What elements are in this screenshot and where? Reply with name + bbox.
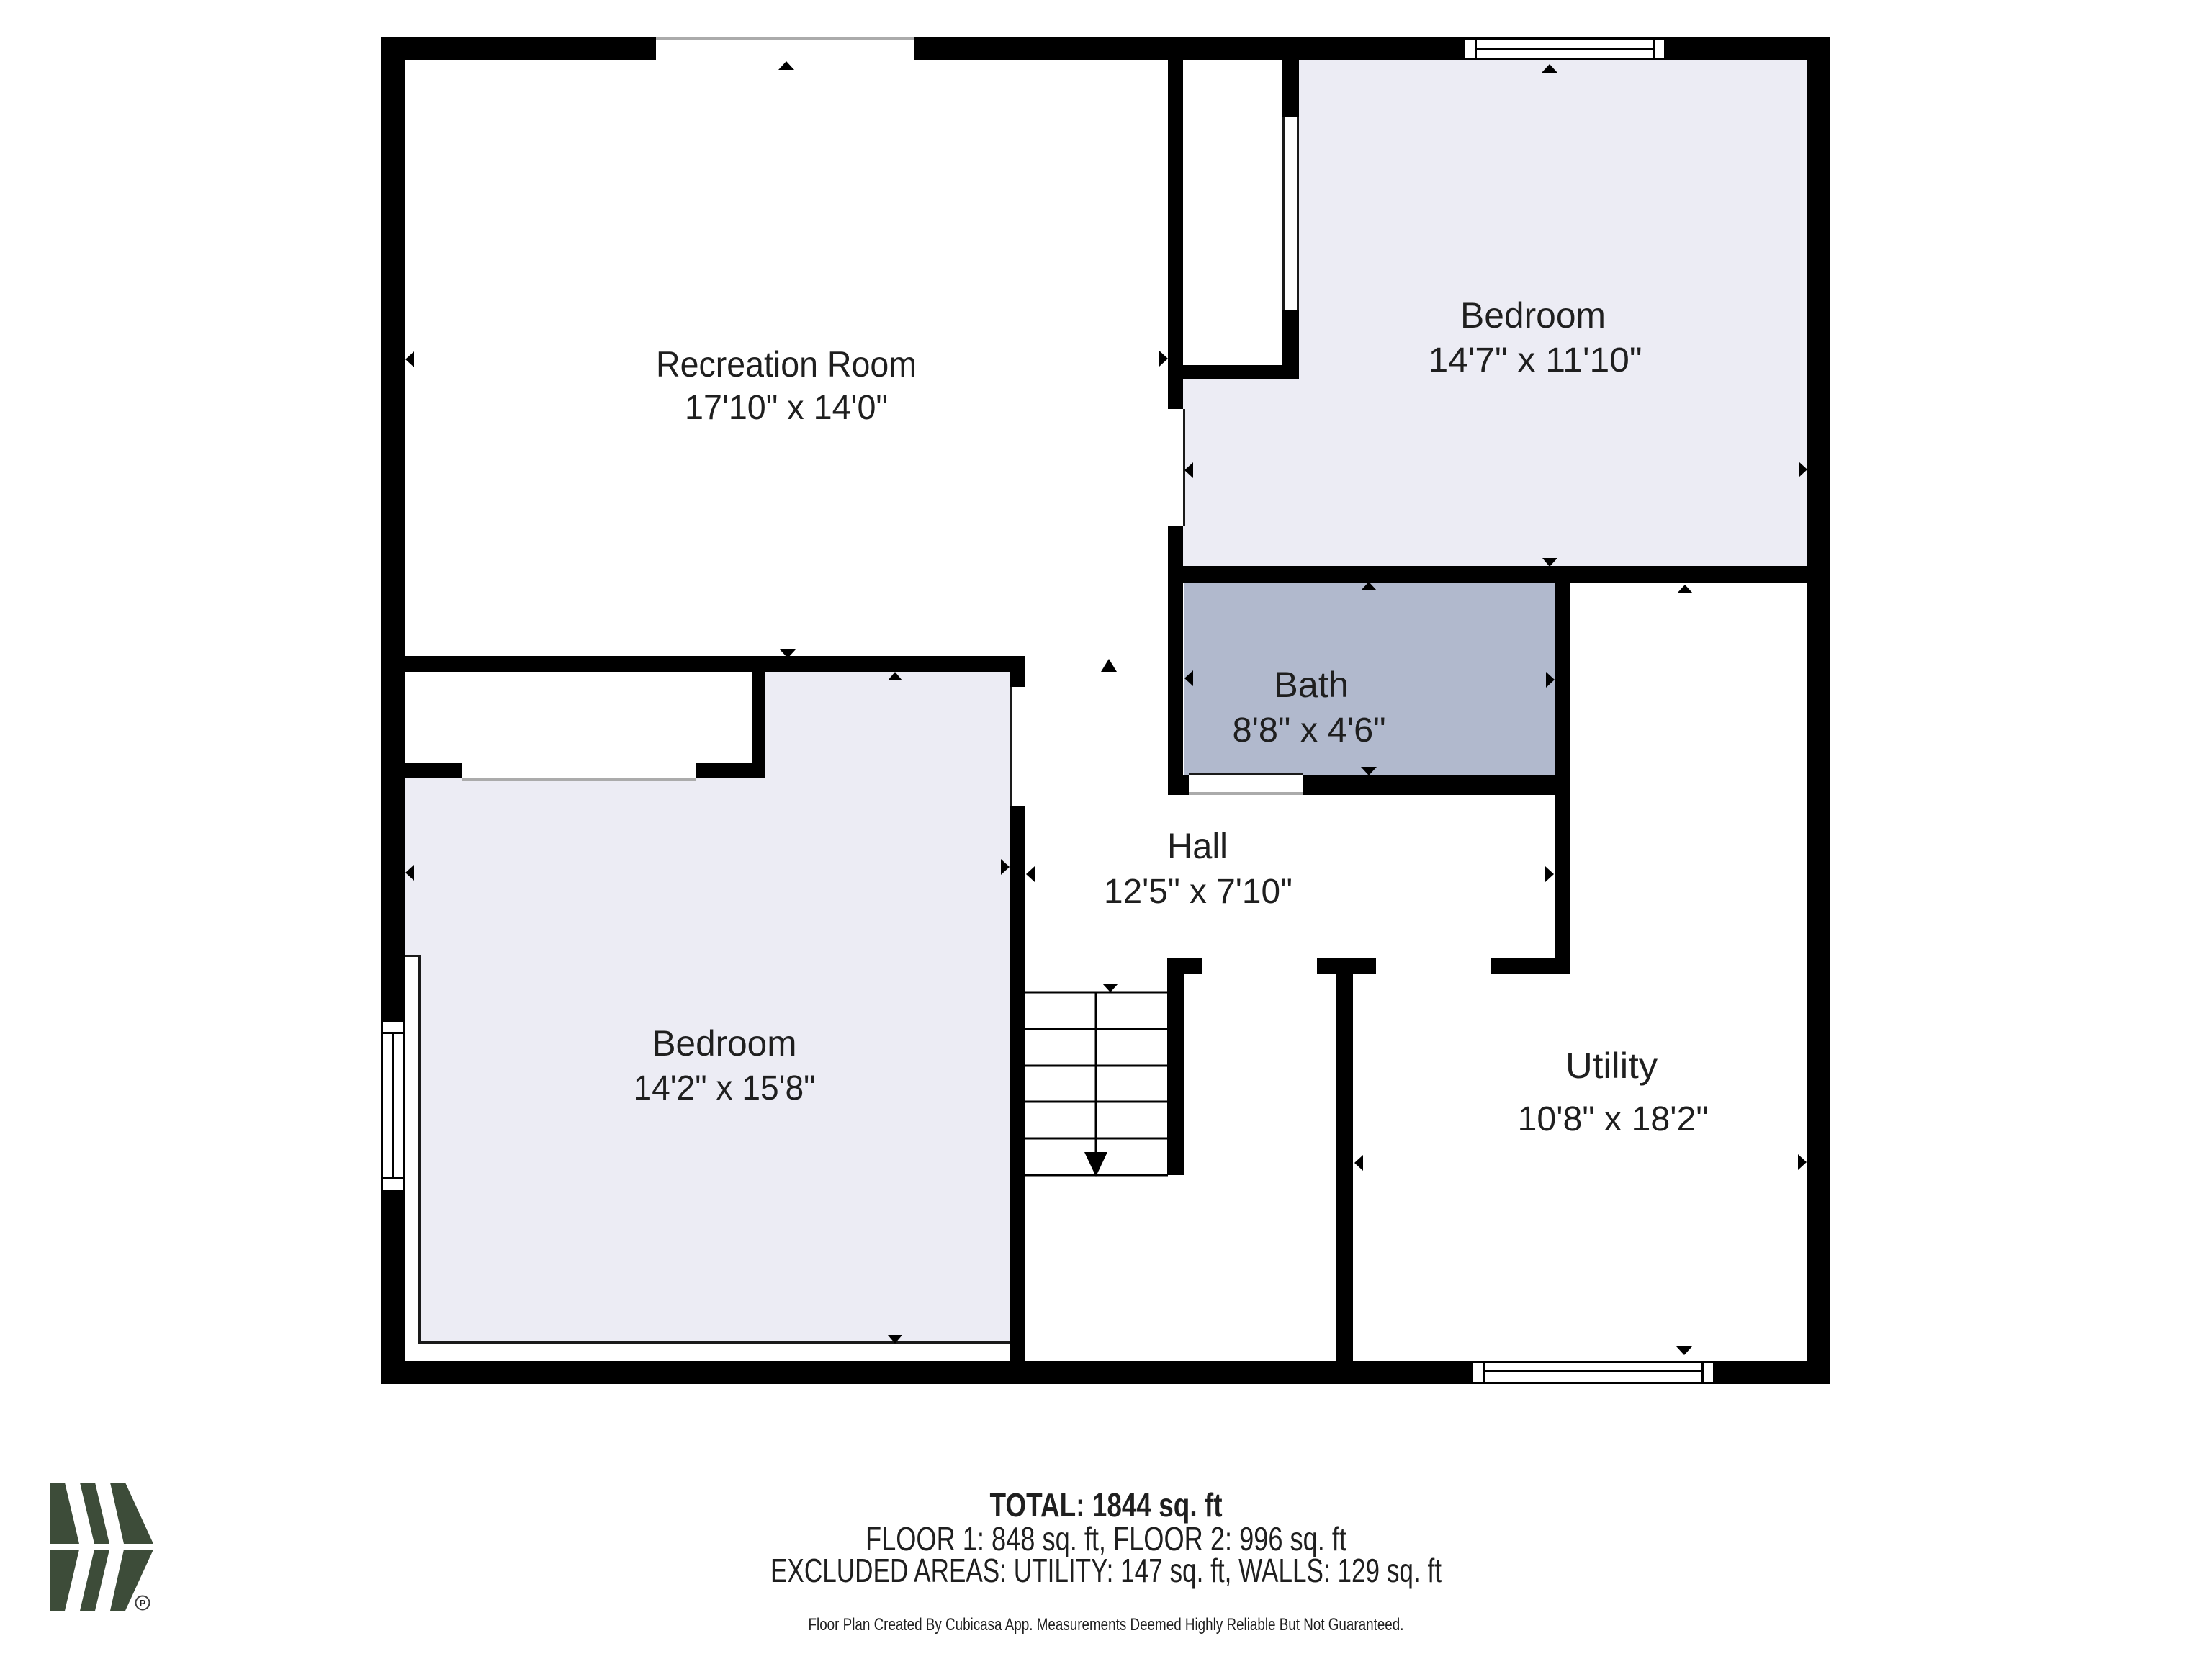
svg-text:P: P [140, 1598, 146, 1609]
svg-text:Utility: Utility [1565, 1046, 1658, 1086]
svg-text:Floor Plan Created By Cubicasa: Floor Plan Created By Cubicasa App. Meas… [809, 1615, 1404, 1635]
svg-text:10'8" x 18'2": 10'8" x 18'2" [1518, 1100, 1709, 1138]
svg-text:14'7" x 11'10": 14'7" x 11'10" [1429, 341, 1642, 379]
svg-text:Bath: Bath [1274, 665, 1349, 705]
svg-text:Bedroom: Bedroom [1460, 295, 1606, 336]
svg-text:TOTAL: 1844 sq. ft: TOTAL: 1844 sq. ft [990, 1486, 1223, 1524]
svg-text:8'8" x 4'6": 8'8" x 4'6" [1233, 711, 1386, 750]
svg-text:17'10" x 14'0": 17'10" x 14'0" [685, 389, 888, 427]
svg-text:12'5" x 7'10": 12'5" x 7'10" [1104, 873, 1292, 911]
svg-text:Bedroom: Bedroom [652, 1023, 797, 1064]
svg-text:14'2" x 15'8": 14'2" x 15'8" [634, 1069, 816, 1107]
svg-text:EXCLUDED AREAS: UTILITY: 147 s: EXCLUDED AREAS: UTILITY: 147 sq. ft, WAL… [770, 1552, 1442, 1589]
svg-text:Recreation Room: Recreation Room [656, 344, 917, 385]
svg-text:Hall: Hall [1167, 826, 1228, 866]
